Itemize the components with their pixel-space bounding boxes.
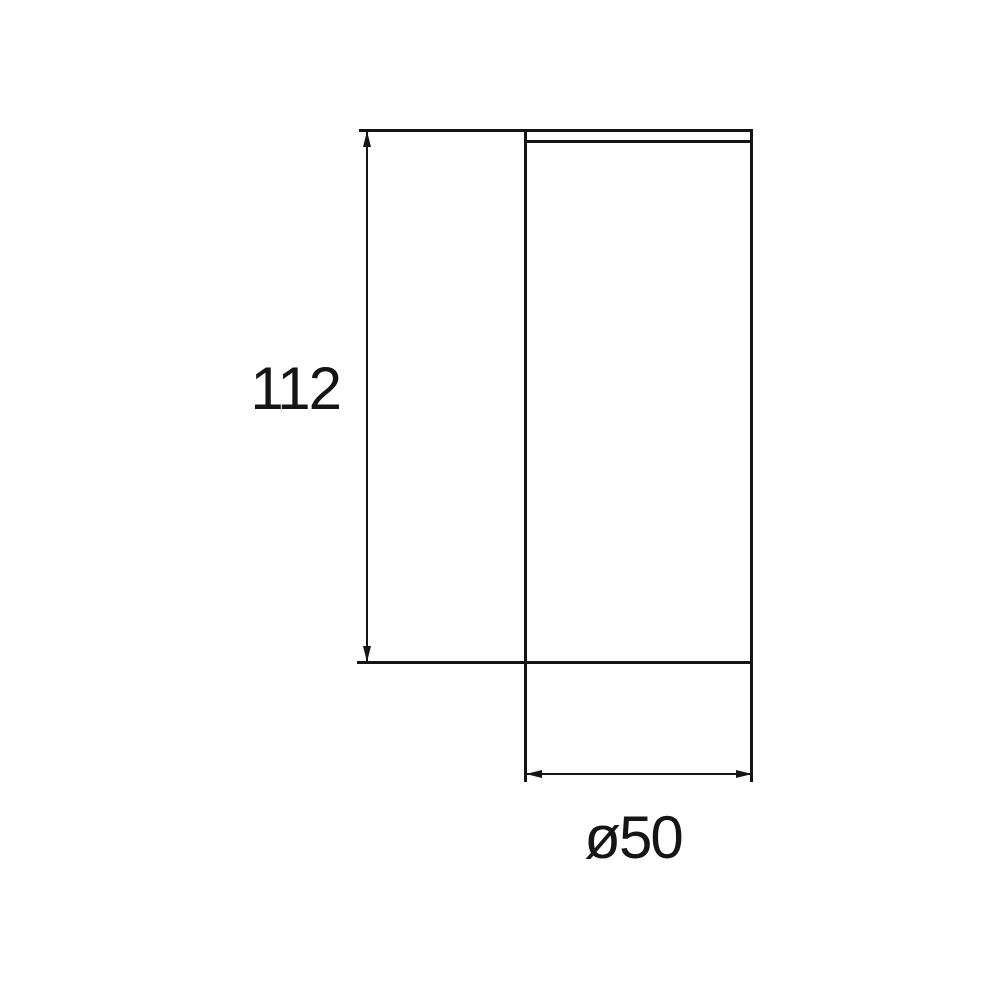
- cylinder-left-edge-with-extension: [524, 129, 527, 782]
- cylinder-top-edge-with-extension: [359, 129, 753, 132]
- height-dimension-label: 112: [190, 359, 340, 419]
- height-dimension-arrow-down-icon: [363, 646, 371, 662]
- cylinder-right-edge-with-extension: [750, 129, 753, 782]
- diameter-dimension-arrow-left-icon: [526, 770, 542, 778]
- height-dimension-line: [366, 131, 368, 661]
- height-dimension-arrow-up-icon: [363, 131, 371, 147]
- cylinder-cap-bottom-edge: [524, 140, 753, 143]
- diameter-dimension-label: ø50: [558, 808, 708, 868]
- cylinder-bottom-edge-with-extension: [357, 661, 753, 664]
- technical-drawing: 112 ø50: [0, 0, 1000, 1000]
- diameter-dimension-line: [526, 773, 752, 775]
- diameter-dimension-arrow-right-icon: [736, 770, 752, 778]
